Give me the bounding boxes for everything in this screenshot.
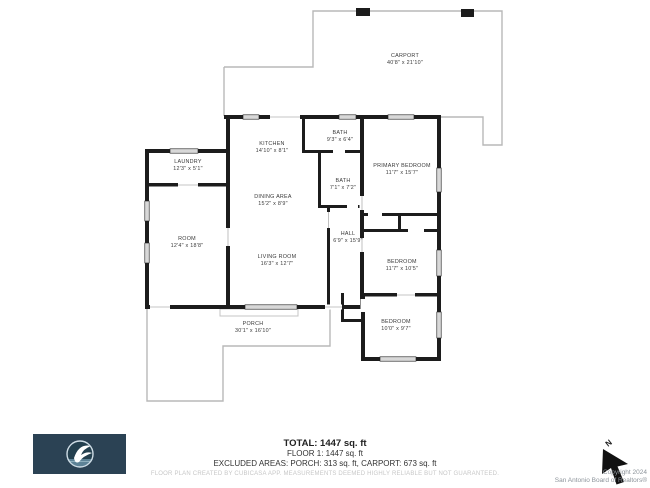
brokerage-logo <box>33 434 126 474</box>
room-dims-porch: 30'1" x 16'10" <box>235 328 271 334</box>
room-label-laundry: LAUNDRY <box>174 159 202 165</box>
room-dims-hall: 6'9" x 15'9" <box>333 238 363 244</box>
room-dims-living-room: 16'3" x 12'7" <box>261 261 294 267</box>
room-label-kitchen: KITCHEN <box>259 141 284 147</box>
room-labels: CARPORT 40'8" x 21'10" LAUNDRY 12'3" x 5… <box>171 53 431 334</box>
room-label-carport: CARPORT <box>391 53 419 59</box>
room-label-dining-area: DINING AREA <box>254 194 292 200</box>
porch-outline <box>147 309 330 401</box>
room-dims-bedroom-2: 11'7" x 10'5" <box>386 266 418 272</box>
room-label-porch: PORCH <box>243 321 264 327</box>
copyright-notice: Copyright 2024 San Antonio Board of Real… <box>555 469 647 485</box>
room-dims-carport: 40'8" x 21'10" <box>387 60 423 66</box>
floor-plan-drawing: CARPORT 40'8" x 21'10" LAUNDRY 12'3" x 5… <box>0 0 650 420</box>
room-dims-dining-area: 15'2" x 8'9" <box>258 201 288 207</box>
room-dims-kitchen: 14'10" x 8'1" <box>256 148 289 154</box>
bird-emblem-icon <box>62 436 98 472</box>
room-label-living-room: LIVING ROOM <box>258 254 297 260</box>
room-label-primary-bedroom: PRIMARY BEDROOM <box>373 163 431 169</box>
room-label-bedroom-2: BEDROOM <box>387 259 417 265</box>
floor-plan-page: CARPORT 40'8" x 21'10" LAUNDRY 12'3" x 5… <box>0 0 650 488</box>
room-dims-bath-2: 7'1" x 7'2" <box>330 185 356 191</box>
room-dims-bath-1: 9'3" x 6'4" <box>327 137 353 143</box>
room-label-room: ROOM <box>178 236 196 242</box>
room-dims-room: 12'4" x 18'8" <box>171 243 204 249</box>
room-dims-laundry: 12'3" x 5'1" <box>173 166 203 172</box>
north-label: N <box>604 438 614 449</box>
interior-walls <box>145 115 441 322</box>
copyright-line-2: San Antonio Board of Realtors® <box>555 477 647 485</box>
carport-post <box>461 9 474 17</box>
room-dims-primary-bedroom: 11'7" x 15'7" <box>386 170 418 176</box>
copyright-line-1: Copyright 2024 <box>555 469 647 477</box>
room-label-hall: HALL <box>341 231 356 237</box>
room-label-bath-1: BATH <box>333 130 348 136</box>
room-label-bath-2: BATH <box>336 178 351 184</box>
room-label-bedroom-3: BEDROOM <box>381 319 411 325</box>
porch-step <box>220 309 298 316</box>
carport-post <box>356 8 370 16</box>
room-dims-bedroom-3: 10'0" x 9'7" <box>381 326 411 332</box>
